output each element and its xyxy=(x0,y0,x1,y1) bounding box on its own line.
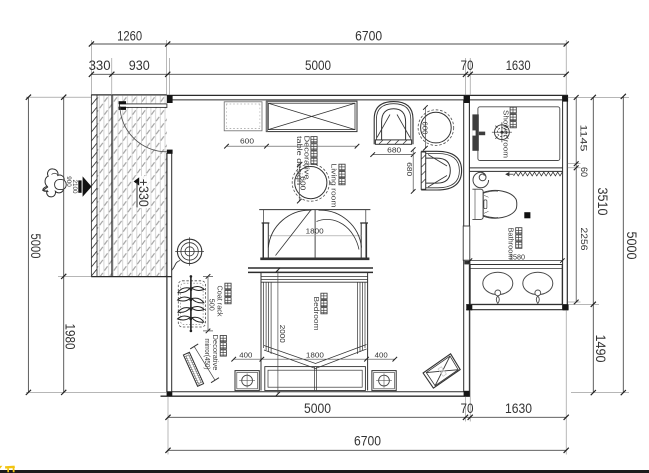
svg-text:70: 70 xyxy=(461,58,474,73)
svg-text:400: 400 xyxy=(239,351,252,360)
svg-text:mirror(450): mirror(450) xyxy=(203,339,212,370)
svg-text:680: 680 xyxy=(405,162,414,176)
svg-text:500: 500 xyxy=(207,299,216,311)
svg-text:60: 60 xyxy=(579,167,589,177)
svg-text:3510: 3510 xyxy=(595,188,610,216)
svg-text:600: 600 xyxy=(420,122,429,135)
svg-text:600: 600 xyxy=(240,136,254,145)
svg-text:5000: 5000 xyxy=(624,232,639,260)
svg-text:680: 680 xyxy=(387,146,401,155)
svg-text:1145: 1145 xyxy=(578,125,588,152)
svg-text:2000: 2000 xyxy=(278,325,287,343)
svg-text:2100: 2100 xyxy=(71,179,78,194)
svg-text:1800: 1800 xyxy=(306,351,324,360)
svg-text:5000: 5000 xyxy=(305,58,331,73)
svg-text:+330: +330 xyxy=(136,179,151,207)
svg-text:400: 400 xyxy=(375,351,388,360)
svg-text:330: 330 xyxy=(89,58,111,73)
svg-text:6700: 6700 xyxy=(355,29,382,44)
svg-text:70: 70 xyxy=(461,401,474,416)
svg-text:930: 930 xyxy=(129,58,150,73)
svg-text:1800: 1800 xyxy=(306,227,324,236)
svg-text:Bedroom: Bedroom xyxy=(312,297,321,331)
svg-text:5000: 5000 xyxy=(304,401,331,416)
svg-text:1630: 1630 xyxy=(506,58,531,73)
svg-text:1260: 1260 xyxy=(117,28,142,43)
svg-text:Shower room: Shower room xyxy=(501,110,510,158)
svg-text:Living room: Living room xyxy=(330,164,339,208)
svg-text:1580: 1580 xyxy=(509,253,525,262)
svg-text:1490: 1490 xyxy=(593,335,608,363)
svg-text:2256: 2256 xyxy=(579,228,589,251)
svg-text:1630: 1630 xyxy=(505,401,532,416)
svg-text:900: 900 xyxy=(65,176,72,187)
svg-text:600: 600 xyxy=(298,176,307,190)
svg-text:6700: 6700 xyxy=(354,433,381,448)
svg-text:1980: 1980 xyxy=(62,324,77,350)
svg-text:5000: 5000 xyxy=(28,234,43,259)
